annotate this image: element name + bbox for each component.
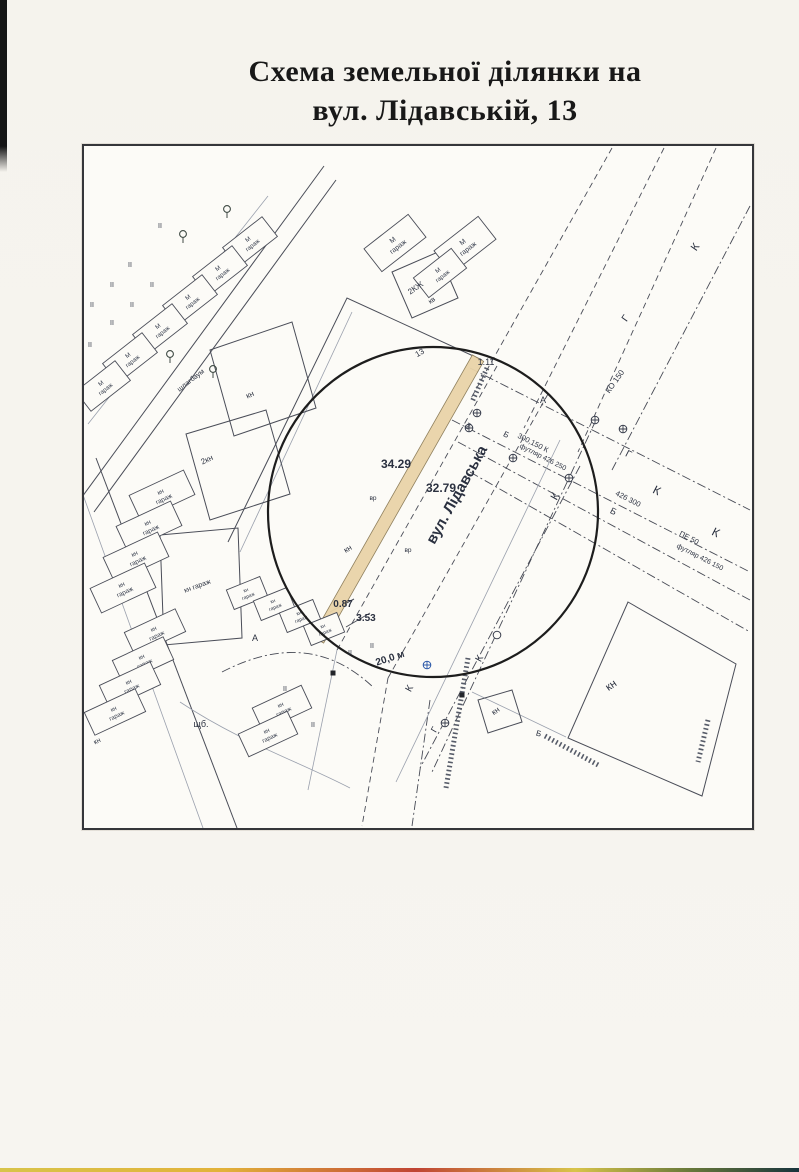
- manhole-icon: [591, 416, 599, 424]
- manhole-icon: [509, 454, 517, 462]
- map-line: [396, 440, 560, 782]
- util-k-4: К: [689, 241, 703, 254]
- map-line: [578, 148, 716, 452]
- parcel-kn-e: кн: [93, 737, 102, 746]
- manhole-icon: [493, 631, 501, 639]
- map-line: [362, 678, 388, 826]
- map-line: [458, 442, 750, 600]
- tree-icon: [224, 206, 231, 218]
- dim-east: 32.79: [426, 481, 456, 495]
- scan-artifact-left-edge: [0, 0, 7, 172]
- map-line: [545, 736, 600, 766]
- map-line: [412, 700, 430, 826]
- parcel-kn-c: кн: [603, 678, 619, 694]
- tree-icon: [180, 231, 187, 243]
- zone-a-2: А: [252, 633, 258, 643]
- manhole-icon: [619, 425, 627, 433]
- manhole-icon: [423, 661, 431, 669]
- big-garage-parcel: кн гараж: [183, 578, 212, 594]
- util-k-1: К: [549, 490, 563, 502]
- manhole-icon: [441, 719, 449, 727]
- map-line: [240, 312, 352, 552]
- util-g-1: Г: [623, 449, 633, 462]
- map-line: [698, 720, 708, 762]
- road-surface: щб.: [193, 719, 208, 729]
- pipe-spec-4: КО 150: [604, 368, 627, 395]
- parcel-kn-a: кн: [244, 389, 255, 401]
- scan-artifact-bottom-edge: [0, 1168, 799, 1172]
- dim-offset-2: 3.53: [356, 613, 376, 624]
- point-vr-1: вр: [369, 495, 376, 502]
- mark-ii: II: [150, 282, 154, 289]
- road-width: 20,0 м: [374, 649, 406, 669]
- parcel-outline: [210, 322, 316, 436]
- util-b-2: Б: [535, 729, 542, 739]
- util-k-3: К: [404, 683, 417, 694]
- parcel-outline: [568, 602, 736, 796]
- mark-ii: II: [283, 686, 287, 693]
- page-title-line1: Схема земельної ділянки на: [120, 52, 770, 91]
- map-line: [337, 366, 497, 650]
- mark-ii: II: [128, 262, 132, 269]
- manhole-icon: [473, 409, 481, 417]
- mark-ii: II: [88, 342, 92, 349]
- manhole-icon: [565, 474, 573, 482]
- map-line: [472, 692, 566, 737]
- pipe-spec-2: 426 300: [614, 489, 642, 509]
- page-title-line2: вул. Лідавській, 13: [120, 91, 770, 130]
- land-plot-map: МгаражМгаражМгаражМгаражМгаражМгаражМгар…: [82, 144, 754, 830]
- tree-icon: [167, 351, 174, 363]
- util-b-3: Б: [502, 430, 511, 440]
- page-title: Схема земельної ділянки на вул. Лідавськ…: [120, 52, 770, 130]
- util-k-5: К: [651, 483, 664, 499]
- mark-ii: II: [158, 223, 162, 230]
- survey-point-icon: [460, 693, 465, 698]
- parcel-2kn: 2кн: [199, 453, 214, 466]
- pipe-spec-3b: футляр 426 150: [675, 543, 724, 573]
- util-g-2: Г: [620, 313, 632, 324]
- survey-point-icon: [331, 671, 336, 676]
- parcel-kn-b: кн: [342, 543, 353, 555]
- map-line: [612, 206, 750, 470]
- mark-ii: II: [110, 282, 114, 289]
- mark-ii: II: [370, 643, 374, 650]
- map-drawing: МгаражМгаражМгаражМгаражМгаражМгаражМгар…: [84, 146, 752, 828]
- mark-ii: II: [348, 650, 352, 657]
- map-line: [524, 148, 664, 428]
- zone-a-1: А: [540, 395, 546, 405]
- dim-north: 1.11: [478, 357, 495, 367]
- mark-ii: II: [90, 302, 94, 309]
- garage-block: Мгараж: [364, 214, 426, 271]
- point-vr-2: вр: [404, 547, 411, 554]
- map-line: [222, 652, 374, 688]
- dim-offset-1: 0.87: [333, 599, 353, 610]
- mark-ii: II: [311, 722, 315, 729]
- util-b-1: Б: [608, 506, 618, 518]
- mark-ii: II: [130, 302, 134, 309]
- barrier-label: шлагбаум: [176, 367, 206, 393]
- map-line: [452, 420, 750, 572]
- dim-west: 34.29: [381, 457, 411, 471]
- parcel-kn-d: кн: [490, 705, 502, 717]
- map-line: [84, 166, 324, 497]
- util-k-6: К: [710, 525, 723, 541]
- mark-ii: II: [110, 320, 114, 327]
- map-line: [470, 472, 750, 632]
